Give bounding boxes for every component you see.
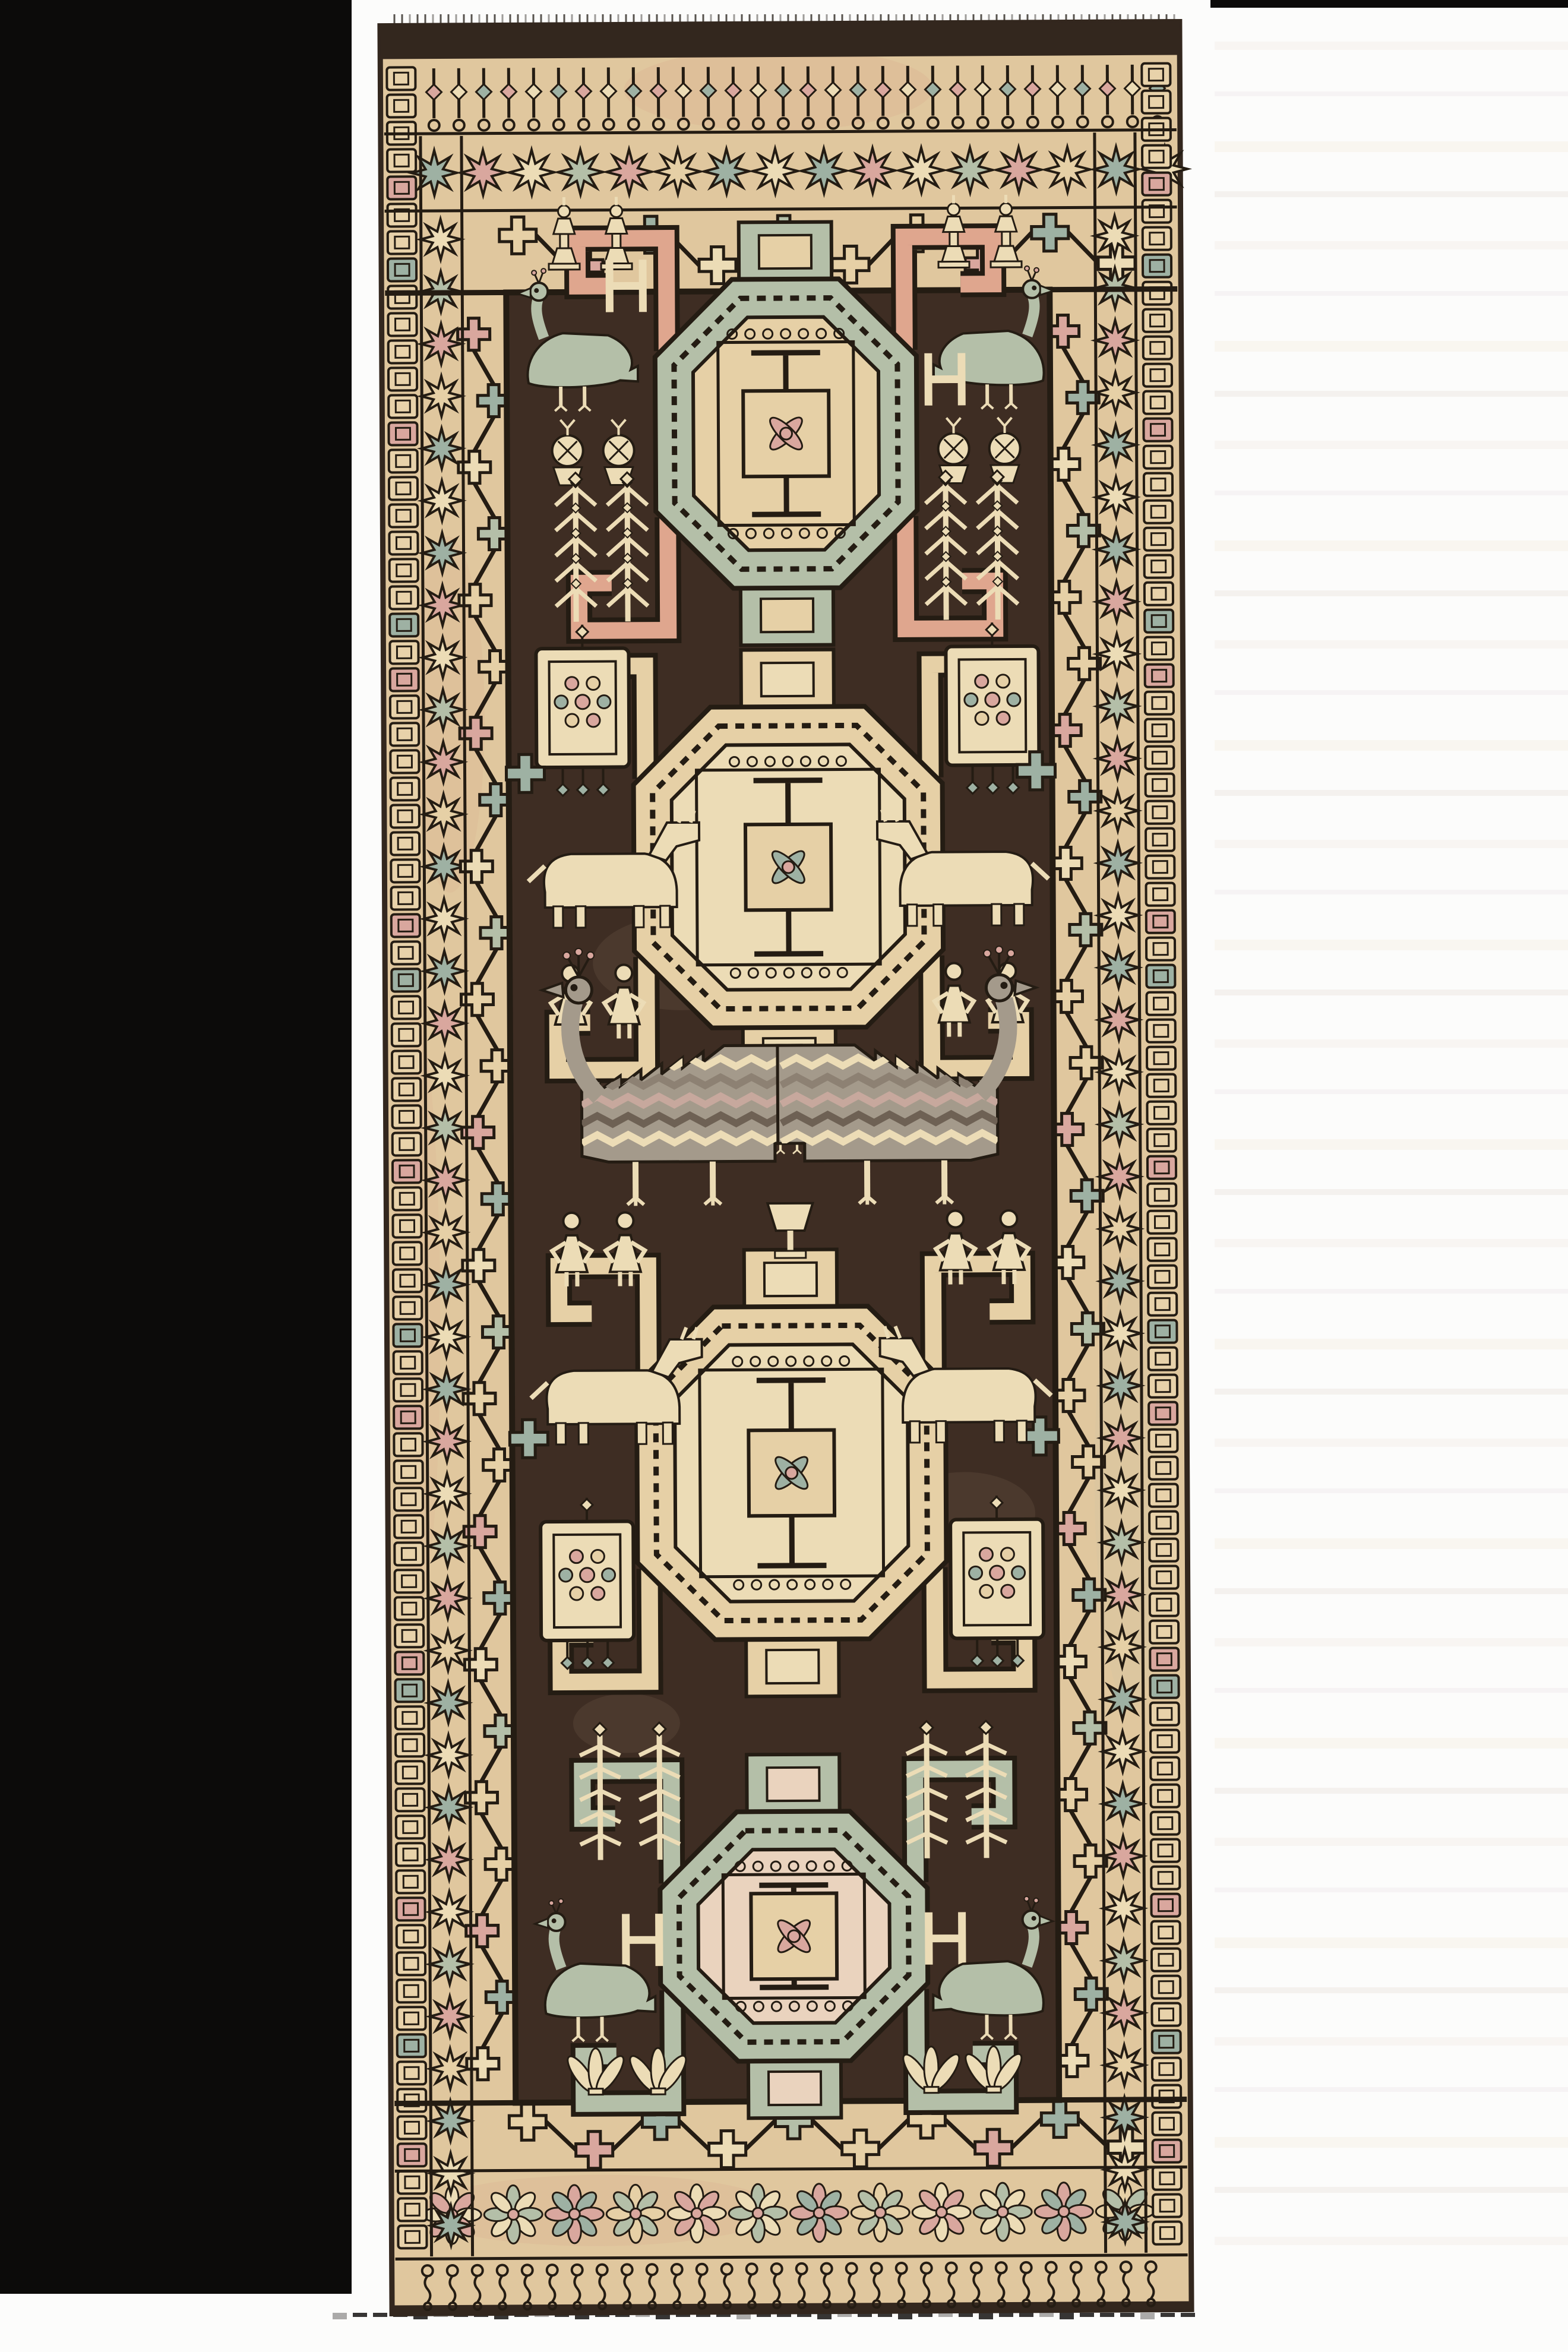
scanned-rug-photo [0,0,1568,2352]
rug [380,21,1199,2313]
rug-photo-canvas [0,0,1568,2352]
top-selvedge [380,22,1180,59]
left-black-margin [0,0,352,2294]
top-right-black-strip [1210,0,1568,8]
